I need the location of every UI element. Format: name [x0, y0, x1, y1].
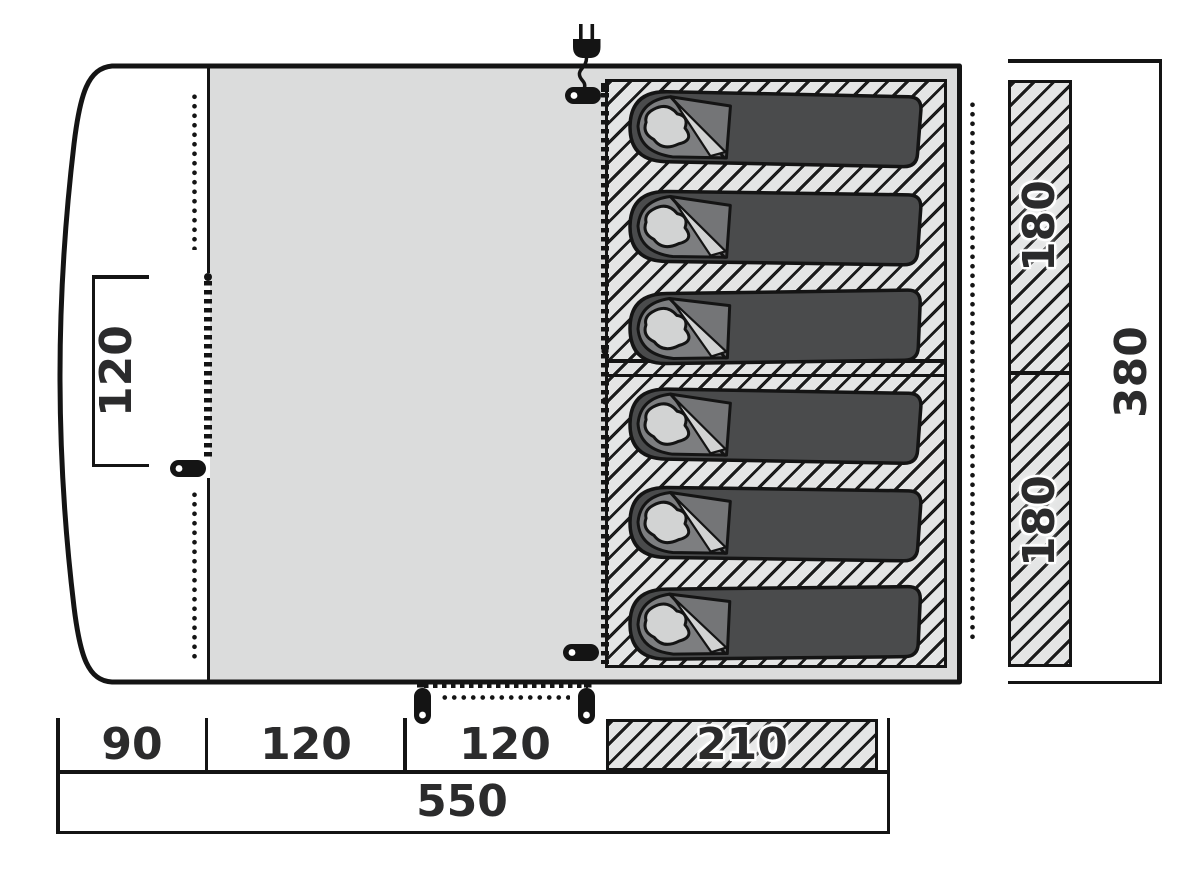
- total-depth-label: 380: [1107, 312, 1157, 432]
- sleeping-bag: [629, 388, 921, 463]
- total-width-label: 550: [402, 774, 522, 830]
- zipper-stop: [417, 680, 425, 688]
- floor-segment-label-120b: 120: [445, 717, 565, 773]
- tent-floorplan-diagram: 120 180 180 380 90 120 120 210 550: [0, 0, 1200, 875]
- zipper-stop: [204, 273, 212, 281]
- zipper-pull-icon: [414, 688, 431, 724]
- zipper-stop: [584, 680, 592, 688]
- sleeping-bag: [630, 586, 921, 659]
- sleeping-bag: [630, 290, 921, 364]
- zipper-pull-icon: [578, 688, 595, 724]
- porch-opening-label: 120: [92, 311, 142, 431]
- zipper-stop: [601, 347, 608, 354]
- zipper-pull-icon: [563, 644, 599, 661]
- power-plug-icon: [573, 24, 601, 88]
- floor-segment-label-120a: 120: [246, 717, 366, 773]
- sleeping-bag: [630, 487, 921, 561]
- sleeping-bag: [629, 91, 921, 167]
- bedroom-lower-depth-label: 180: [1015, 461, 1065, 581]
- sleeping-bag: [630, 191, 921, 265]
- zipper-stop: [601, 83, 609, 92]
- floor-segment-label-210: 210: [682, 717, 802, 773]
- zipper-stop: [601, 397, 608, 404]
- floor-segment-label-90: 90: [72, 717, 192, 773]
- zipper-pull-icon: [565, 87, 601, 104]
- zipper-pull-icon: [170, 460, 206, 477]
- bedroom-upper-depth-label: 180: [1015, 166, 1065, 286]
